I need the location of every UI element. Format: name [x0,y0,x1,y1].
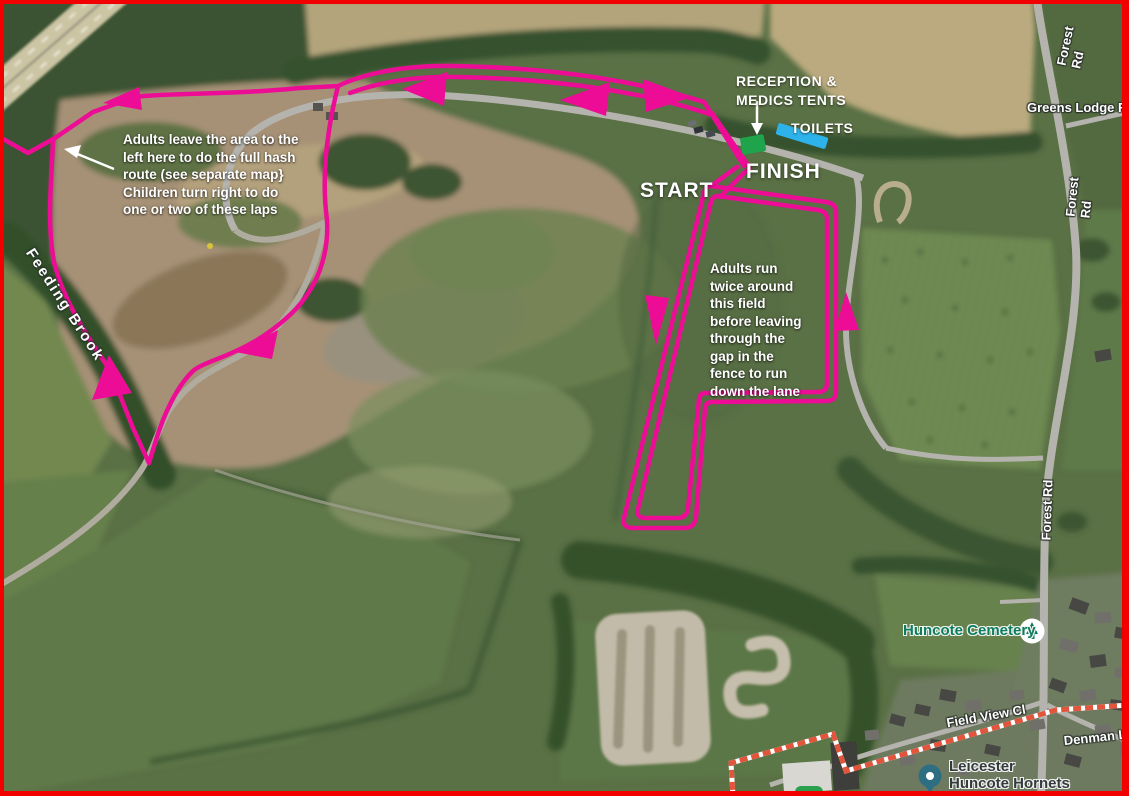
satellite-map-canvas [0,0,1129,796]
hornets-label-line2: Huncote Hornets [949,775,1070,792]
finish-label: FINISH [746,160,821,184]
start-label: START [640,179,713,203]
reception-label: RECEPTION & MEDICS TENTS [736,72,846,110]
adults-run-note: Adults run twice around this field befor… [710,260,820,400]
forest-rd-label: Forest Rd [1063,167,1098,219]
greens-lodge-farm-label: Greens Lodge Farm [1027,100,1129,115]
adults-leave-note: Adults leave the area to the left here t… [123,131,333,219]
annotated-route-map: Adults leave the area to the left here t… [0,0,1129,796]
huncote-cemetery-label: Huncote Cemetery [903,622,1036,639]
hornets-label: Leicester Huncote Hornets [949,758,1070,792]
hornets-label-line1: Leicester [949,758,1070,775]
toilets-label: TOILETS [791,119,853,138]
forest-rd-label: Forest Rd [1038,479,1055,540]
